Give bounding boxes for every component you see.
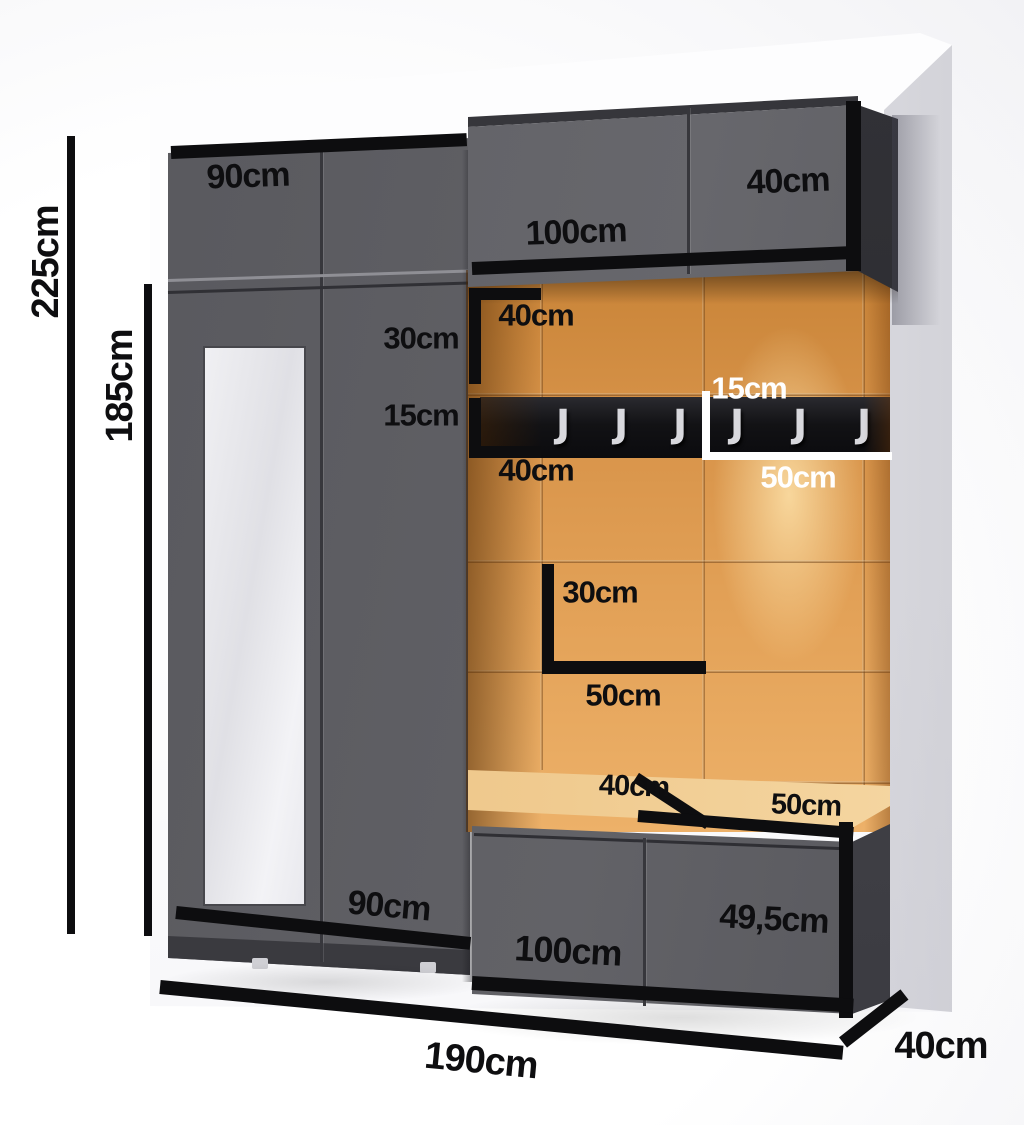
dim-label-total-width: 190cm (423, 1037, 539, 1086)
coat-hook-icon: J (556, 405, 570, 443)
dim-label-seat-left: 40cm (598, 771, 669, 802)
dim-label-wall-cabinet-height: 40cm (746, 163, 830, 200)
dim-label-rail-side-height: 15cm (383, 400, 458, 431)
dim-line-wall-cabinet-right (846, 101, 861, 271)
coat-hook-icon: J (730, 405, 744, 443)
dim-label-bench-height: 49,5cm (719, 899, 830, 939)
dim-bracket-corner-top-v (469, 288, 481, 384)
dim-label-mid-panel-height: 30cm (562, 577, 637, 608)
dim-bracket-mid-v (542, 564, 554, 674)
dim-label-corner-bottom-width: 40cm (498, 455, 573, 486)
dim-label-rail-height: 15cm (711, 373, 786, 404)
dim-label-bench-width: 100cm (514, 930, 623, 972)
dim-label-seat-right: 50cm (770, 790, 841, 821)
wall-cabinet-cast-shadow (892, 115, 940, 325)
coat-hook-icon: J (614, 405, 628, 443)
mirror (203, 346, 306, 906)
dim-label-rail-panel-width: 50cm (760, 462, 835, 493)
dim-label-wall-cabinet-width: 100cm (525, 213, 627, 250)
panel-right-edge-shading (864, 270, 890, 832)
furniture-dimension-diagram: JJJJJJ 225cm 185cm 90cm 100cm 40cm 40cm … (0, 0, 1024, 1125)
dim-label-mid-panel-width: 50cm (585, 680, 660, 711)
dim-label-corner-height: 30cm (383, 323, 458, 354)
coat-hook-icon: J (793, 405, 807, 443)
dim-label-wardrobe-width: 90cm (346, 885, 432, 926)
dim-label-total-depth: 40cm (894, 1027, 987, 1065)
coat-hook-icon: J (673, 405, 687, 443)
dim-label-top-cabinet-width: 90cm (206, 158, 290, 195)
wall-cabinet-door-divider (687, 108, 690, 274)
dim-label-total-height: 225cm (27, 205, 65, 318)
dim-line-rail-height-white (702, 391, 710, 459)
dim-bracket-mid-h (542, 661, 706, 674)
dim-line-open-height (144, 284, 152, 936)
wardrobe-door-divider (320, 150, 323, 962)
bench-door-divider (643, 838, 646, 1006)
dim-line-total-height (67, 136, 75, 934)
dim-label-open-height: 185cm (101, 329, 139, 442)
panel-seam (702, 272, 705, 780)
dim-line-bench-right (839, 822, 853, 1018)
dim-label-corner-top-width: 40cm (498, 300, 573, 331)
